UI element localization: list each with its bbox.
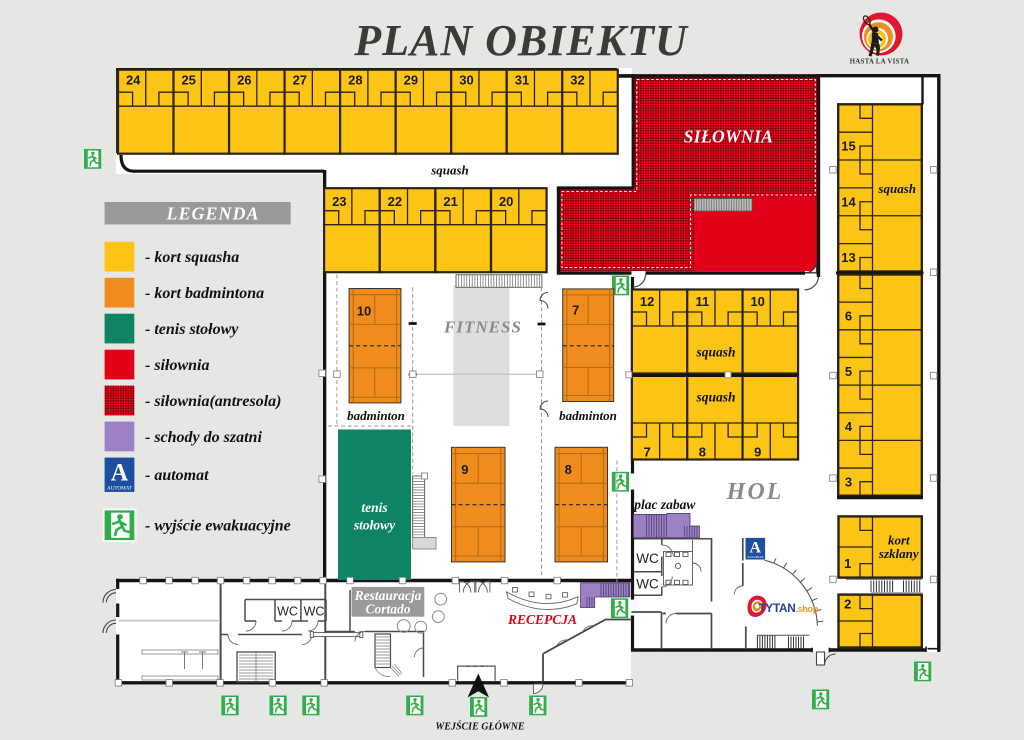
svg-text:- tenis stołowy: - tenis stołowy [145,321,239,338]
svg-text:- siłownia(antresola): - siłownia(antresola) [145,393,281,410]
svg-text:plac zabaw: plac zabaw [633,497,696,512]
svg-text:WC: WC [304,605,325,619]
svg-text:6: 6 [845,309,852,324]
svg-text:- automat: - automat [145,467,209,484]
svg-text:20: 20 [499,194,513,209]
svg-text:WC: WC [636,577,659,592]
svg-text:23: 23 [332,194,346,209]
svg-text:9: 9 [461,462,468,477]
svg-text:1: 1 [844,556,851,571]
svg-text:TYTAN.shop: TYTAN.shop [759,601,819,615]
svg-text:squash: squash [430,163,469,178]
svg-text:7: 7 [643,445,650,460]
svg-text:15: 15 [841,139,855,154]
svg-text:HOL: HOL [726,479,784,505]
svg-text:10: 10 [357,303,371,318]
svg-text:29: 29 [404,73,418,88]
svg-text:28: 28 [348,73,362,88]
svg-text:31: 31 [515,73,529,88]
svg-text:24: 24 [126,73,141,88]
svg-text:12: 12 [640,294,654,309]
svg-text:WC: WC [277,605,298,619]
svg-text:squash: squash [877,181,916,196]
svg-text:- wyjście ewakuacyjne: - wyjście ewakuacyjne [145,518,291,535]
svg-text:RECEPCJA: RECEPCJA [507,612,577,627]
svg-text:- siłownia: - siłownia [145,357,209,374]
svg-text:30: 30 [459,73,473,88]
svg-text:- kort squasha: - kort squasha [145,249,239,266]
svg-text:13: 13 [841,250,855,265]
svg-text:Cortado: Cortado [365,602,410,617]
svg-text:szklany: szklany [878,546,919,561]
svg-text:3: 3 [845,474,852,489]
svg-text:HASTA LA VISTA: HASTA LA VISTA [850,58,910,66]
svg-text:- schody do szatni: - schody do szatni [145,429,262,446]
svg-text:10: 10 [750,294,764,309]
svg-text:squash: squash [695,345,735,360]
svg-text:2: 2 [844,596,851,611]
svg-text:5: 5 [845,364,852,379]
svg-text:LEGENDA: LEGENDA [165,204,259,224]
svg-text:4: 4 [845,419,853,434]
svg-text:stołowy: stołowy [353,518,396,533]
svg-text:badminton: badminton [559,408,617,423]
svg-text:27: 27 [293,73,307,88]
svg-text:badminton: badminton [347,408,405,423]
svg-text:32: 32 [570,73,584,88]
svg-text:WC: WC [636,551,659,566]
svg-text:26: 26 [237,73,251,88]
svg-text:11: 11 [696,294,710,309]
svg-text:tenis: tenis [361,500,387,515]
svg-text:22: 22 [388,194,402,209]
svg-text:7: 7 [572,303,579,318]
svg-text:21: 21 [443,194,457,209]
svg-text:- kort badmintona: - kort badmintona [145,285,264,302]
svg-text:8: 8 [565,462,572,477]
svg-text:squash: squash [695,390,735,405]
svg-text:PLAN OBIEKTU: PLAN OBIEKTU [353,16,689,65]
svg-text:8: 8 [699,445,706,460]
svg-text:SIŁOWNIA: SIŁOWNIA [684,127,774,147]
svg-text:WEJŚCIE GŁÓWNE: WEJŚCIE GŁÓWNE [435,721,525,733]
svg-text:FITNESS: FITNESS [443,318,522,337]
svg-text:9: 9 [754,445,761,460]
svg-text:14: 14 [841,194,856,209]
svg-text:25: 25 [181,73,195,88]
